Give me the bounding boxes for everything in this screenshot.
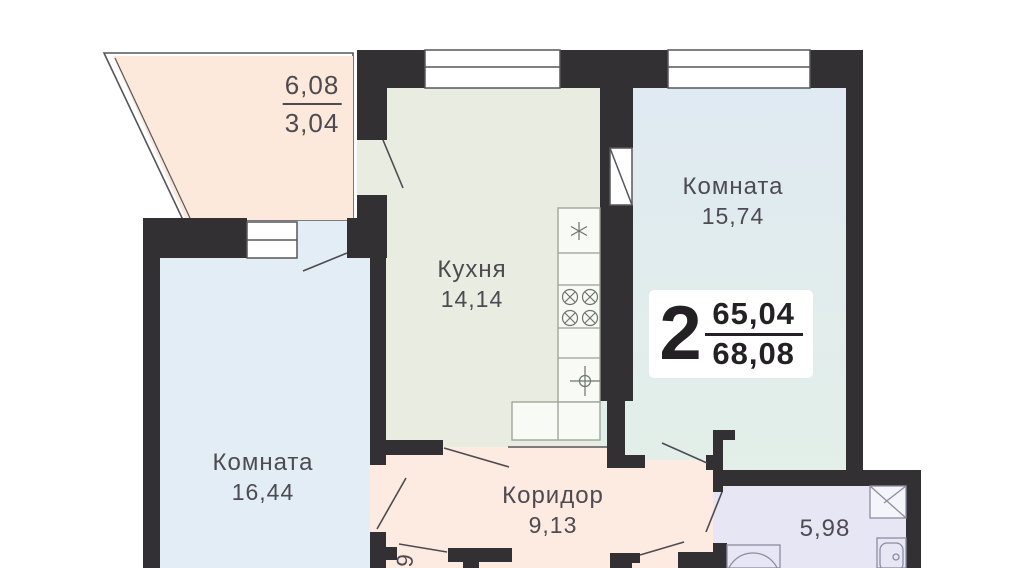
- bathroom-label: 5,98: [800, 514, 851, 544]
- bedroom-left-area-value: 16,44: [213, 478, 314, 507]
- kitchen-area-value: 14,14: [437, 285, 506, 314]
- area-fraction: 65,04 68,08: [705, 297, 803, 370]
- floor-plan: 6,08 3,04 Кухня 14,14 Комната 15,74 Комн…: [0, 0, 1024, 568]
- bathroom-area-value: 5,98: [800, 515, 851, 542]
- bedroom-left-area: [143, 218, 387, 568]
- bedroom-top-name: Комната: [683, 173, 784, 200]
- bedroom-top-window: [668, 50, 810, 88]
- balcony-block-window: [247, 222, 297, 258]
- adjacent-room-label: 6: [390, 553, 418, 568]
- room-count: 2: [659, 302, 699, 367]
- corridor-name: Коридор: [502, 482, 604, 509]
- bedroom-left-name: Комната: [213, 449, 314, 476]
- total-area: 68,08: [712, 337, 795, 371]
- balcony-area-lower: 3,04: [283, 105, 342, 139]
- vent-shaft-icon: [870, 486, 906, 518]
- kitchen-label: Кухня 14,14: [437, 255, 506, 314]
- bedroom-top-label: Комната 15,74: [683, 172, 784, 231]
- bedroom-top-area-value: 15,74: [683, 202, 784, 231]
- living-area: 65,04: [712, 297, 795, 331]
- apartment-badge: 2 65,04 68,08: [649, 290, 813, 378]
- bedroom-top-area: [600, 50, 863, 486]
- corridor-label: Коридор 9,13: [502, 481, 604, 540]
- corridor-area-value: 9,13: [502, 511, 604, 540]
- balcony-area-upper: 6,08: [283, 70, 342, 105]
- wall-niche: [610, 148, 632, 205]
- kitchen-window: [425, 50, 560, 88]
- kitchen-name: Кухня: [437, 256, 506, 283]
- balcony-label: 6,08 3,04: [283, 70, 342, 139]
- bedroom-left-label: Комната 16,44: [213, 448, 314, 507]
